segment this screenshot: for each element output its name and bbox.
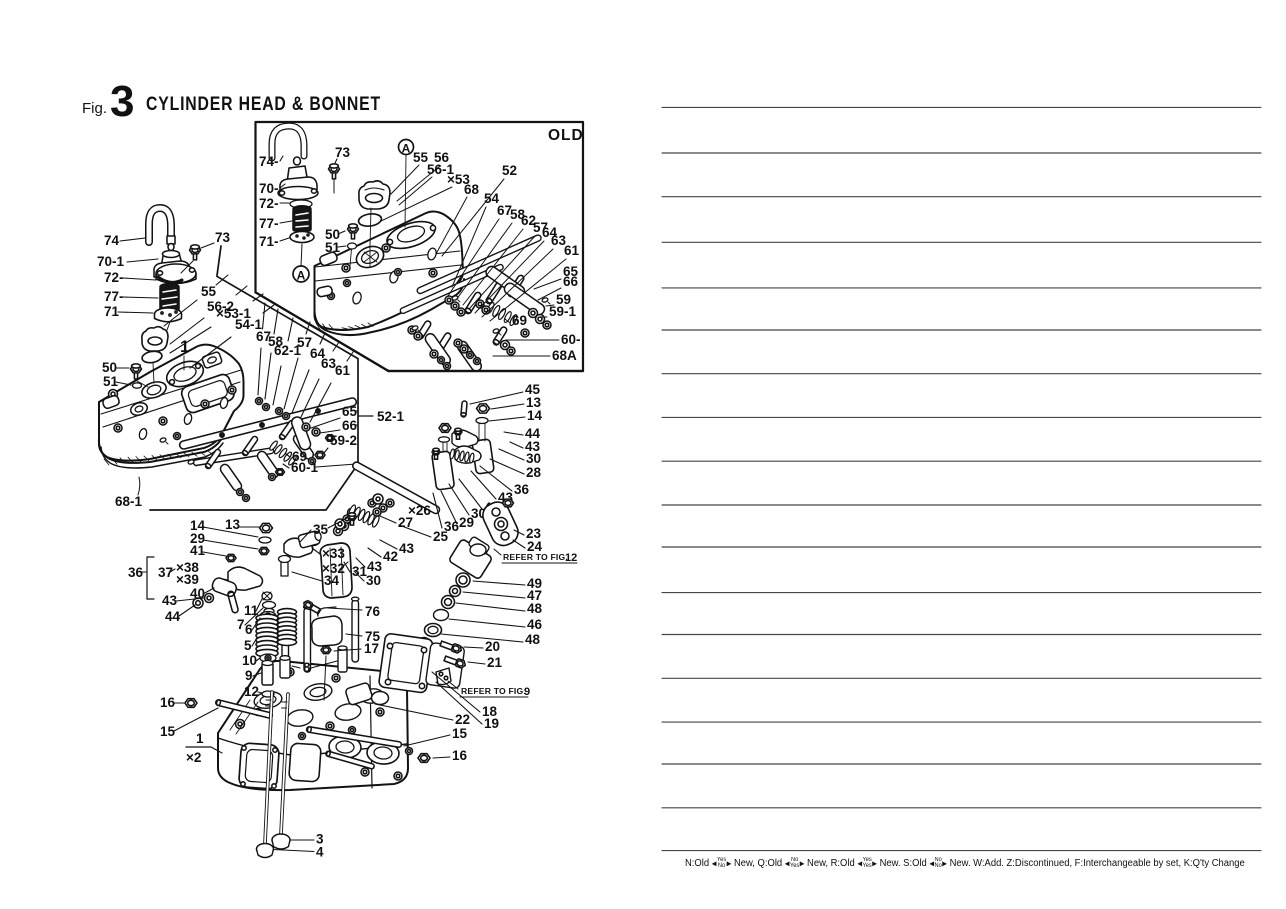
svg-text:52: 52 (502, 163, 517, 178)
svg-text:61: 61 (564, 243, 580, 258)
svg-text:46: 46 (527, 617, 543, 632)
svg-text:21: 21 (487, 655, 503, 670)
svg-text:68: 68 (464, 182, 480, 197)
svg-text:3: 3 (110, 77, 134, 126)
svg-text:REFER TO FIG.: REFER TO FIG. (503, 552, 568, 562)
svg-text:27: 27 (398, 515, 413, 530)
svg-text:28: 28 (526, 465, 542, 480)
svg-text:14: 14 (527, 408, 543, 423)
svg-text:60-: 60- (561, 332, 581, 347)
svg-text:61: 61 (335, 363, 351, 378)
svg-text:CYLINDER HEAD & BONNET: CYLINDER HEAD & BONNET (146, 94, 381, 115)
svg-text:76: 76 (365, 604, 381, 619)
svg-text:OLD: OLD (548, 127, 584, 144)
svg-text:43: 43 (367, 559, 383, 574)
svg-text:9: 9 (524, 686, 530, 698)
svg-text:22: 22 (455, 712, 470, 727)
svg-text:77-: 77- (259, 216, 279, 231)
svg-text:73: 73 (215, 230, 231, 245)
svg-text:35: 35 (313, 522, 329, 537)
svg-text:41: 41 (190, 543, 206, 558)
svg-text:70-1: 70-1 (97, 254, 125, 269)
svg-text:7: 7 (237, 617, 245, 632)
svg-text:37: 37 (158, 565, 173, 580)
svg-text:30: 30 (526, 451, 541, 466)
svg-text:29: 29 (459, 515, 474, 530)
svg-text:1: 1 (196, 731, 204, 746)
svg-text:72-: 72- (259, 196, 279, 211)
svg-text:59-1: 59-1 (549, 304, 577, 319)
svg-text:73: 73 (335, 145, 351, 160)
svg-text:34: 34 (324, 573, 340, 588)
svg-text:42: 42 (383, 549, 398, 564)
svg-text:20: 20 (485, 639, 500, 654)
svg-text:74: 74 (104, 233, 120, 248)
svg-text:74-: 74- (259, 154, 279, 169)
svg-text:60-1: 60-1 (291, 460, 319, 475)
svg-text:16: 16 (452, 748, 468, 763)
svg-text:×33: ×33 (322, 546, 345, 561)
svg-text:30: 30 (366, 573, 381, 588)
svg-text:15: 15 (160, 724, 176, 739)
svg-text:12: 12 (244, 684, 259, 699)
svg-text:13: 13 (225, 517, 241, 532)
svg-text:REFER TO FIG.: REFER TO FIG. (461, 686, 526, 696)
svg-text:×2: ×2 (186, 750, 201, 765)
svg-text:69: 69 (512, 313, 527, 328)
svg-text:16: 16 (160, 695, 176, 710)
svg-text:8: 8 (303, 660, 311, 675)
svg-text:5: 5 (244, 638, 252, 653)
svg-text:70-: 70- (259, 181, 279, 196)
svg-text:4: 4 (316, 845, 324, 860)
svg-text:12: 12 (565, 552, 577, 564)
svg-text:66: 66 (563, 274, 579, 289)
svg-text:43: 43 (399, 541, 415, 556)
svg-text:25: 25 (433, 529, 449, 544)
svg-text:10: 10 (242, 653, 257, 668)
svg-text:43: 43 (162, 593, 178, 608)
svg-text:36: 36 (514, 482, 530, 497)
svg-text:55: 55 (201, 284, 217, 299)
svg-text:1: 1 (180, 337, 189, 356)
svg-text:A: A (402, 142, 411, 156)
svg-text:Fig.: Fig. (82, 100, 107, 117)
svg-text:44: 44 (165, 609, 181, 624)
svg-text:48: 48 (525, 632, 541, 647)
svg-text:19: 19 (484, 716, 499, 731)
svg-text:59-2: 59-2 (330, 433, 357, 448)
svg-text:15: 15 (452, 726, 468, 741)
svg-text:48: 48 (527, 601, 543, 616)
svg-text:77-: 77- (104, 289, 124, 304)
svg-text:9: 9 (245, 668, 253, 683)
svg-text:72-: 72- (104, 270, 124, 285)
svg-text:71: 71 (104, 304, 120, 319)
svg-text:A: A (297, 269, 306, 283)
svg-text:×39: ×39 (176, 572, 199, 587)
svg-text:52-1: 52-1 (377, 409, 405, 424)
svg-text:71-: 71- (259, 234, 279, 249)
svg-text:50: 50 (102, 360, 117, 375)
svg-text:17: 17 (364, 641, 379, 656)
svg-text:68A: 68A (552, 348, 577, 363)
svg-text:68-1: 68-1 (115, 494, 143, 509)
